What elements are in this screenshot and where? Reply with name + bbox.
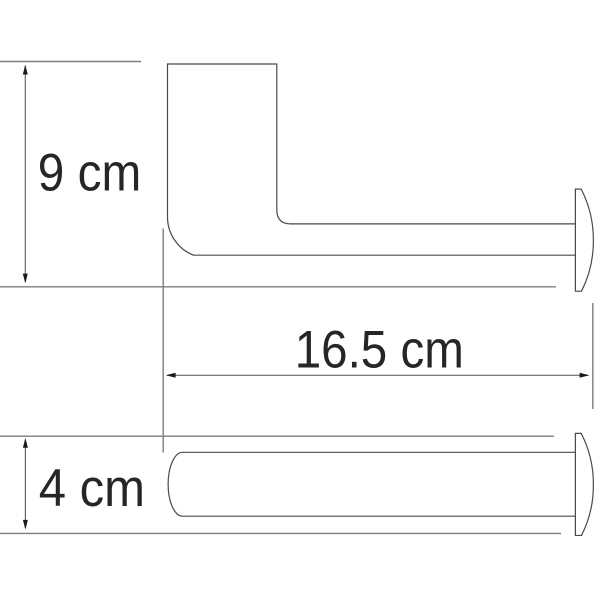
svg-text:9 cm: 9 cm <box>38 144 141 203</box>
svg-text:16.5 cm: 16.5 cm <box>295 320 464 379</box>
svg-text:4 cm: 4 cm <box>39 459 145 518</box>
